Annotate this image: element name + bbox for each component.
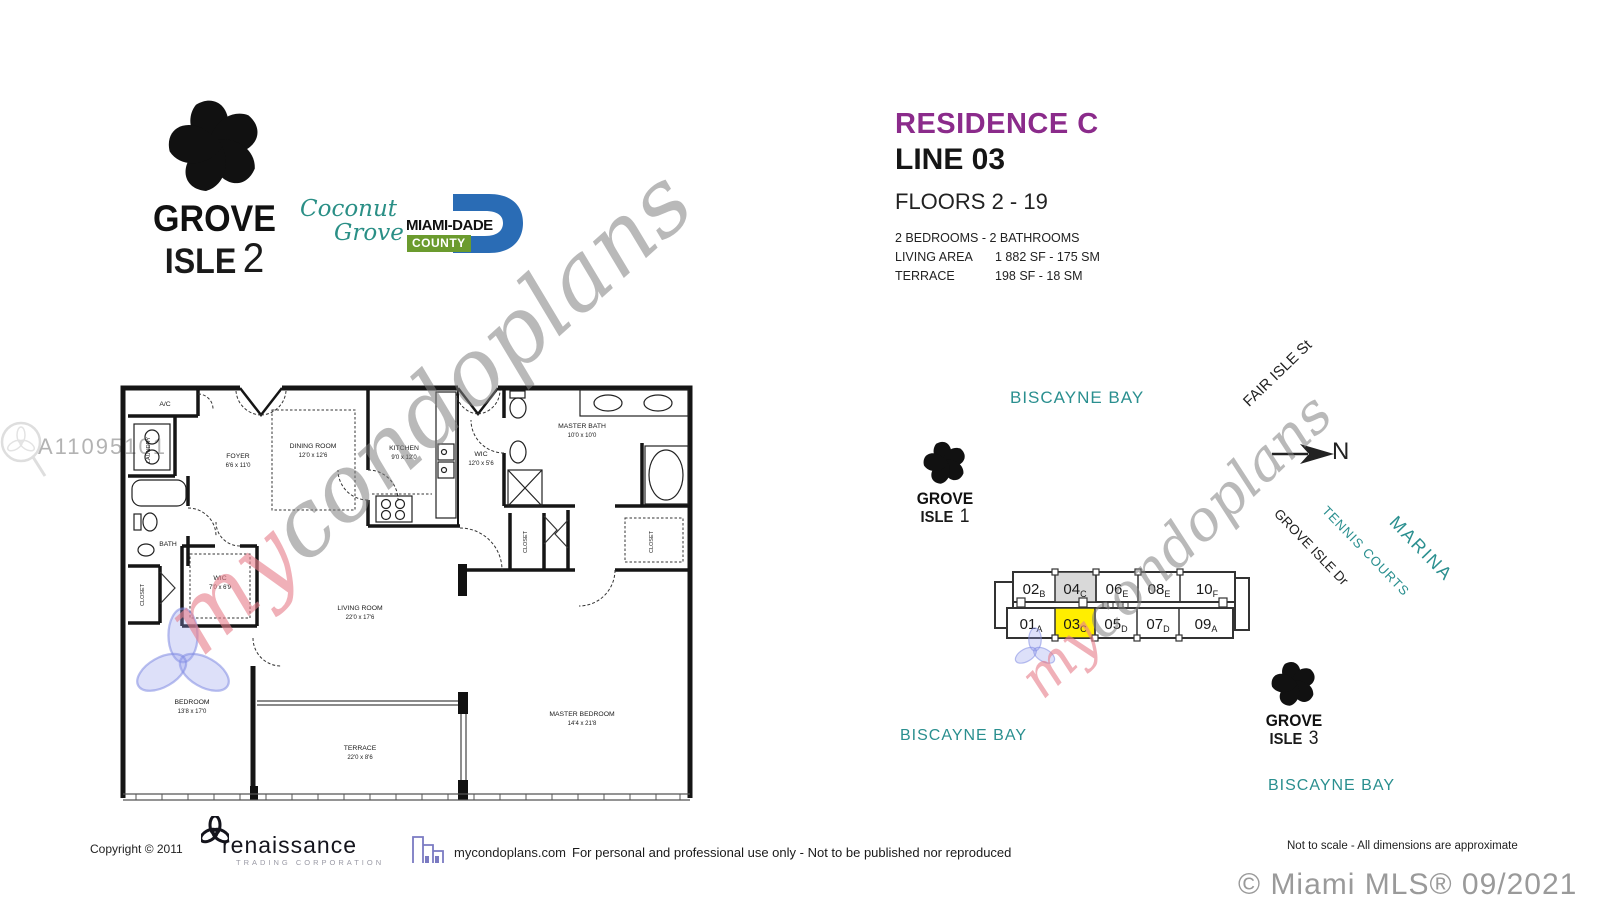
floors-range: FLOORS 2 - 19: [895, 189, 1100, 215]
unit-header: RESIDENCE C LINE 03 FLOORS 2 - 19 2 BEDR…: [895, 108, 1100, 285]
grove-word2: ISLE: [921, 510, 954, 526]
room-dims-terrace: 22'0 x 8'6: [347, 755, 373, 761]
toilet: [143, 513, 157, 531]
biscayne-bay-left: BISCAYNE BAY: [900, 727, 1027, 745]
room-label-master-bedroom: MASTER BEDROOM: [549, 711, 615, 718]
terrace-row: TERRACE 198 SF - 18 SM: [895, 267, 1100, 286]
room-label-closet-a: CLOSET: [523, 530, 529, 553]
residence-title: RESIDENCE C: [895, 108, 1100, 141]
unit-specs: 2 BEDROOMS - 2 BATHROOMS LIVING AREA 1 8…: [895, 229, 1100, 285]
coconut-word1: Coconut: [300, 197, 404, 221]
window-ticks: [136, 794, 680, 800]
line-title: LINE 03: [895, 143, 1100, 177]
living-area-label: LIVING AREA: [895, 248, 995, 267]
grove-word2: ISLE: [165, 244, 237, 279]
scale-note: Not to scale - All dimensions are approx…: [1287, 840, 1518, 852]
room-dims-wic-master: 12'0 x 5'6: [468, 461, 494, 467]
room-label-wic-master: WIC: [474, 451, 487, 458]
living-area-row: LIVING AREA 1 882 SF - 175 SM: [895, 248, 1100, 267]
unit-num: 10: [1196, 581, 1213, 598]
copyright-text: Copyright © 2011: [90, 842, 183, 856]
renaissance-logo-text: renaissance: [222, 832, 357, 859]
living-area-value: 1 882 SF - 175 SM: [995, 248, 1100, 267]
grove-isle-2-logo: GROVE ISLE2: [122, 92, 307, 279]
north-label: N: [1332, 438, 1349, 466]
master-tub: [645, 446, 688, 504]
room-label-living: LIVING ROOM: [337, 605, 383, 612]
room-label-foyer: FOYER: [226, 453, 250, 460]
mycondoplans-site-text: mycondoplans.com: [454, 845, 566, 860]
grove-isle-1-logo: GROVE ISLE1: [902, 438, 988, 526]
coconut-grove-logo: Coconut Grove: [300, 197, 404, 245]
sink: [138, 544, 154, 556]
room-label-master-bath: MASTER BATH: [558, 423, 606, 430]
grove-word2: ISLE: [1270, 732, 1303, 748]
grove-word1: GROVE: [129, 200, 299, 237]
usage-disclaimer: For personal and professional use only -…: [572, 845, 1011, 860]
room-label-ac: A/C: [159, 401, 170, 408]
grove-flower-icon: [159, 92, 271, 196]
terrace-label: TERRACE: [895, 267, 995, 286]
unit-num: 02: [1023, 581, 1040, 598]
unit-num: 07: [1146, 616, 1163, 633]
grove-word1: GROVE: [905, 490, 984, 507]
laundry-machines: [134, 424, 170, 470]
grove-flower-icon: [919, 438, 971, 486]
grove-number: 3: [1309, 729, 1319, 748]
bed-bath: 2 BEDROOMS - 2 BATHROOMS: [895, 229, 1100, 248]
room-dims-foyer: 6'6 x 11'0: [226, 463, 252, 469]
mls-credit: © Miami MLS® 09/2021: [1238, 868, 1577, 902]
grove-isle-3-logo: GROVE ISLE3: [1248, 658, 1340, 748]
grove-number: 1: [960, 507, 970, 526]
miami-dade-name: MIAMI-DADE: [405, 217, 494, 234]
room-dims-living: 22'0 x 17'6: [346, 615, 375, 621]
coconut-word2: Grove: [334, 221, 404, 245]
floorplan-sheet: { "branding": { "grove_isle_2": {"word1"…: [0, 0, 1600, 922]
biscayne-bay-top: BISCAYNE BAY: [1010, 388, 1144, 408]
room-label-laundry: LAUNDRY: [146, 437, 152, 464]
renaissance-sub-text: TRADING CORPORATION: [236, 858, 384, 867]
unit-letter: F: [1213, 589, 1219, 599]
grove-number: 2: [243, 237, 264, 279]
room-label-closet-b: CLOSET: [649, 530, 655, 553]
biscayne-bay-right: BISCAYNE BAY: [1268, 777, 1395, 795]
unit-letter: D: [1163, 624, 1170, 634]
terrace-value: 198 SF - 18 SM: [995, 267, 1083, 286]
grove-flower-icon: [1266, 658, 1322, 708]
unit-letter: A: [1211, 624, 1217, 634]
bathtub: [132, 480, 186, 506]
miami-dade-county: COUNTY: [407, 235, 471, 252]
room-dims-master-bedroom: 14'4 x 21'8: [568, 721, 597, 727]
mycondoplans-buildings-icon: [410, 834, 448, 864]
master-sink: [510, 441, 526, 463]
unit-num: 09: [1195, 616, 1212, 633]
unit-letter: B: [1039, 589, 1045, 599]
room-label-bath: BATH: [159, 541, 177, 548]
room-dims-master-bath: 10'0 x 10'0: [568, 433, 597, 439]
room-label-terrace: TERRACE: [344, 745, 377, 752]
grove-word1: GROVE: [1252, 712, 1337, 729]
miami-dade-logo: MIAMI-DADE COUNTY: [405, 192, 525, 256]
